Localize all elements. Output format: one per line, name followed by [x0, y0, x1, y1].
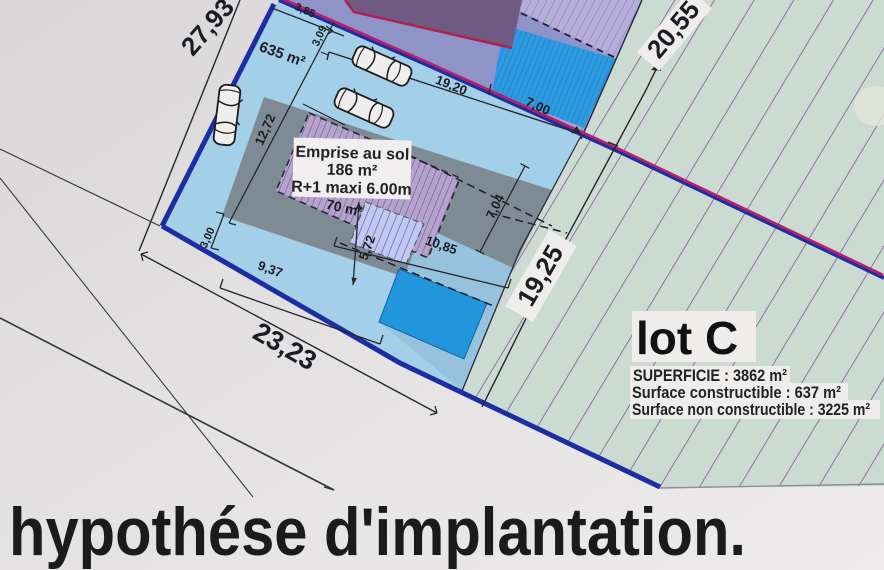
svg-text:Emprise au sol: Emprise au sol: [295, 144, 409, 164]
svg-text:lot C: lot C: [636, 312, 738, 364]
svg-text:R+1 maxi 6.00m: R+1 maxi 6.00m: [291, 179, 412, 199]
svg-text:hypothése d'implantation.: hypothése d'implantation.: [9, 494, 746, 570]
svg-text:186 m²: 186 m²: [326, 162, 377, 180]
svg-text:Surface non constructible : 32: Surface non constructible : 3225 m²: [632, 400, 870, 419]
